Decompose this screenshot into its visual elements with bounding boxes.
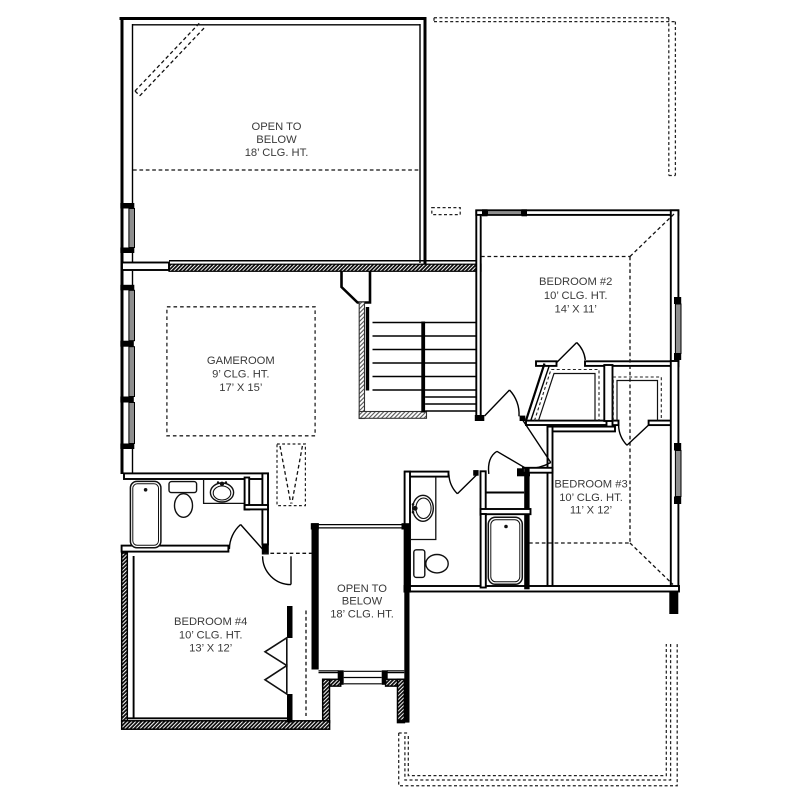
svg-text:BELOW: BELOW [256,134,297,146]
svg-text:10’ CLG. HT.: 10’ CLG. HT. [179,629,243,641]
svg-text:10’ CLG. HT.: 10’ CLG. HT. [559,492,623,504]
svg-text:BELOW: BELOW [342,596,383,608]
svg-text:11’ X 12’: 11’ X 12’ [570,505,612,517]
svg-text:BEDROOM #4: BEDROOM #4 [174,616,247,628]
svg-text:10’ CLG. HT.: 10’ CLG. HT. [544,290,608,302]
svg-text:13’ X 12’: 13’ X 12’ [189,643,232,655]
svg-text:GAMEROOM: GAMEROOM [207,355,275,367]
svg-text:OPEN TO: OPEN TO [252,121,302,133]
svg-text:BEDROOM #3: BEDROOM #3 [554,479,627,491]
svg-text:18’ CLG. HT.: 18’ CLG. HT. [330,609,394,621]
svg-text:9’ CLG. HT.: 9’ CLG. HT. [212,369,269,381]
svg-text:OPEN TO: OPEN TO [337,583,387,595]
svg-text:17’ X 15’: 17’ X 15’ [219,382,262,394]
svg-text:14’ X 11’: 14’ X 11’ [555,303,597,315]
svg-text:BEDROOM #2: BEDROOM #2 [539,276,612,288]
svg-text:18’ CLG. HT.: 18’ CLG. HT. [245,147,309,159]
